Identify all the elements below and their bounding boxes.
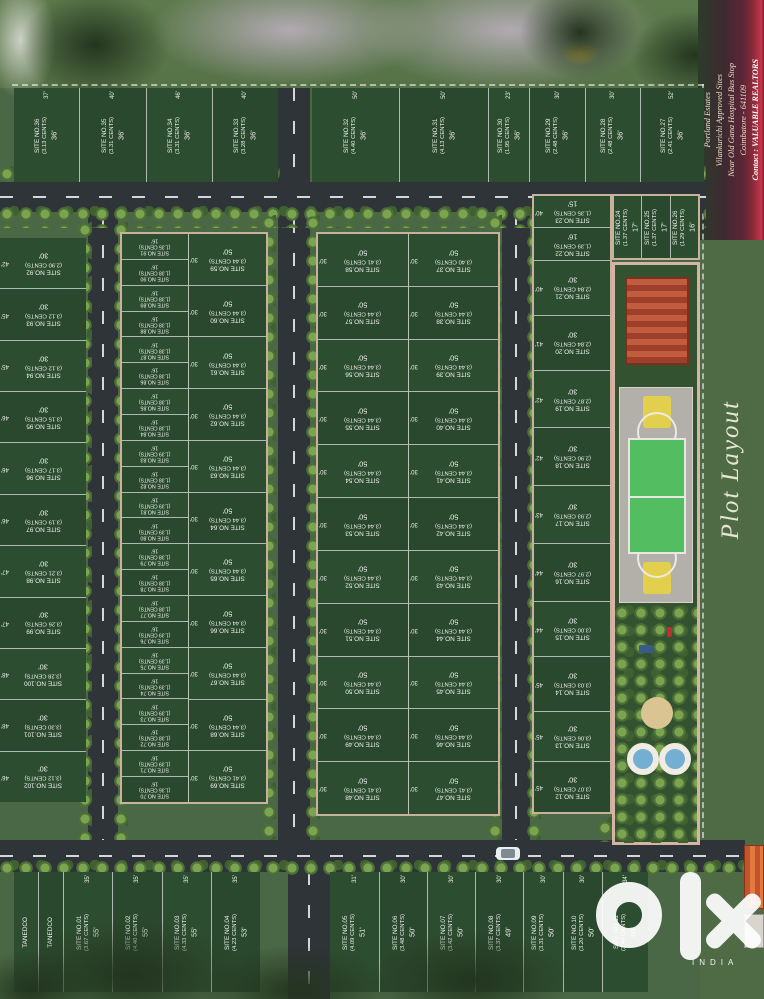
- plot: SITE NO.64(3.44 CENTS)50'30': [189, 492, 266, 544]
- plot-group-top-left: SITE NO.36(3.13 CENTS)36'37'SITE NO.35(3…: [14, 88, 278, 182]
- plot: SITE NO.75(1.39 CENTS)16': [122, 647, 188, 673]
- plot: SITE NO.92(2.90 CENTS)30'42': [0, 238, 86, 288]
- plot: SITE NO.63(3.44 CENTS)50'30': [189, 440, 266, 492]
- plot: SITE NO.38(3.44 CENTS)50'30': [409, 286, 499, 339]
- plot: SITE NO.78(1.38 CENTS)16': [122, 569, 188, 595]
- plot: SITE NO.36(3.13 CENTS)36'37': [14, 88, 79, 182]
- plot-dimension: 30': [190, 567, 198, 573]
- plot: SITE NO.79(1.38 CENTS)16': [122, 543, 188, 569]
- plot-dimension: 30': [190, 774, 198, 780]
- plot: SITE NO.14(3.03 CENTS)30'45': [534, 656, 610, 711]
- plot: SITE NO.47(3.41 CENTS)50'30': [409, 761, 499, 814]
- plot: SITE NO.80(1.39 CENTS)16': [122, 517, 188, 543]
- plot: SITE NO.70(1.36 CENTS)16': [122, 776, 188, 802]
- plot: SITE NO.54(3.44 CENTS)50'30': [318, 444, 408, 497]
- plot-dimension: 30': [319, 679, 327, 685]
- plot-dimension: 44': [535, 569, 543, 575]
- plot: SITE NO.91(1.35 CENTS)16': [122, 234, 188, 259]
- plot: SITE NO.55(3.44 CENTS)50'30': [318, 391, 408, 444]
- plot-dimension: 46': [1, 466, 9, 472]
- plot: SITE NO.56(3.44 CENTS)50'30': [318, 339, 408, 392]
- plot-dimension: 45': [535, 681, 543, 687]
- plot: SITE NO.67(3.44 CENTS)50'30': [189, 647, 266, 699]
- plot-dimension: 30': [190, 619, 198, 625]
- amenity-area: [612, 262, 700, 845]
- plot-dimension: 30': [410, 310, 418, 316]
- plot-dimension: 40': [110, 91, 116, 99]
- plot-dimension: 40': [535, 209, 543, 215]
- plot-dimension: 30': [319, 574, 327, 580]
- plot-dimension: 45': [535, 784, 543, 790]
- plot-group-48-58: SITE NO.58(3.41 CENTS)50'30'SITE NO.57(3…: [318, 234, 408, 814]
- plot-dimension: 30': [410, 521, 418, 527]
- plot: SITE NO.35(3.31 CENTS)36'40': [79, 88, 145, 182]
- plot-dimension: 42': [1, 260, 9, 266]
- plot-dimension: 30': [319, 521, 327, 527]
- plot: SITE NO.84(1.38 CENTS)16': [122, 414, 188, 440]
- plot: SITE NO.13(3.06 CENTS)30'45': [534, 711, 610, 762]
- plot-dimension: 35': [184, 875, 190, 883]
- plot: SITE NO.19(2.87 CENTS)30'42': [534, 370, 610, 428]
- plot: SITE NO.51(3.44 CENTS)50'30': [318, 603, 408, 656]
- plot-dimension: 30': [190, 412, 198, 418]
- plot: SITE NO.31(4.13 CENTS)36'50': [399, 88, 487, 182]
- plot-dimension: 30': [319, 310, 327, 316]
- plot: SITE NO.20(2.84 CENTS)30'41': [534, 315, 610, 370]
- plot-dimension: 30': [319, 363, 327, 369]
- plot: SITE NO.65(3.44 CENTS)50'30': [189, 543, 266, 595]
- plot: SITE NO.62(3.44 CENTS)50'30': [189, 388, 266, 440]
- plot: SITE NO.44(3.44 CENTS)50'30': [409, 603, 499, 656]
- plot: SITE NO.21(2.84 CENTS)30'40': [534, 260, 610, 315]
- plot: SITE NO.76(1.39 CENTS)16': [122, 621, 188, 647]
- plot-dimension: 30': [319, 785, 327, 791]
- plot: SITE NO.46(3.44 CENTS)50'30': [409, 708, 499, 761]
- plot: SITE NO.61(3.44 CENTS)50'30': [189, 336, 266, 388]
- plot-dimension: 30': [541, 875, 547, 883]
- plot-dimension: 40': [535, 285, 543, 291]
- plot: SITE NO.77(1.38 CENTS)16': [122, 595, 188, 621]
- playground-item: [639, 645, 653, 653]
- plot: SITE NO.94(3.12 CENTS)30'45': [0, 340, 86, 391]
- sand-pit: [641, 697, 673, 729]
- plot-dimension: 30': [190, 722, 198, 728]
- plot: SITE NO.22(1.39 CENTS)16': [534, 227, 610, 259]
- plot: SITE NO.37(3.40 CENTS)50'30': [409, 234, 499, 286]
- plot-group-12-23: SITE NO.23(1.35 CENTS)15'40'SITE NO.22(1…: [532, 194, 612, 814]
- boundary-line: [12, 84, 704, 86]
- plot-dimension: 30': [410, 468, 418, 474]
- plot: SITE NO.95(3.15 CENTS)30'46': [0, 391, 86, 442]
- pool: [659, 743, 691, 775]
- olx-india-label: INDIA: [692, 958, 738, 967]
- plot-dimension: 42': [535, 396, 543, 402]
- banner-line: Near Old Gana Hospital Bus Stop: [727, 63, 736, 177]
- plot: SITE NO.43(3.44 CENTS)50'30': [409, 550, 499, 603]
- plot-dimension: 35': [233, 875, 239, 883]
- plot-dimension: 30': [401, 875, 407, 883]
- plot-dimension: 30': [410, 627, 418, 633]
- block-center: SITE NO.58(3.41 CENTS)50'30'SITE NO.57(3…: [316, 232, 500, 816]
- plot-dimension: 50': [353, 91, 359, 99]
- plot: SITE NO.33(3.28 CENTS)36'40': [212, 88, 278, 182]
- plot: SITE NO.101(3.30 CENTS)30'48': [0, 699, 86, 750]
- car-icon: [496, 847, 520, 860]
- plot: SITE NO.66(3.44 CENTS)50'30': [189, 595, 266, 647]
- plot: SITE NO.89(1.38 CENTS)16': [122, 285, 188, 311]
- plot: SITE NO.32(4.40 CENTS)36'50': [312, 88, 399, 182]
- plot: SITE NO.12(3.07 CENTS)30'45': [534, 761, 610, 812]
- plot-dimension: 30': [410, 574, 418, 580]
- plot-group-top-right: SITE NO.32(4.40 CENTS)36'50'SITE NO.31(4…: [312, 88, 704, 182]
- plot-dimension: 41': [535, 340, 543, 346]
- plot-dimension: 30': [190, 360, 198, 366]
- plot-dimension: 30': [190, 463, 198, 469]
- plot: SITE NO.57(3.44 CENTS)50'30': [318, 286, 408, 339]
- plot: SITE NO.68(3.44 CENTS)50'30': [189, 699, 266, 751]
- plot-dimension: 31': [352, 875, 358, 883]
- plot-dimension: 46': [1, 414, 9, 420]
- plot: SITE NO.87(1.38 CENTS)16': [122, 336, 188, 362]
- plot: SITE NO.69(3.41 CENTS)50'30': [189, 750, 266, 802]
- plot: SITE NO.98(3.21 CENTS)30'47': [0, 545, 86, 596]
- plot: SITE NO.81(1.39 CENTS)16': [122, 492, 188, 518]
- olx-logo: INDIA: [580, 866, 764, 974]
- plot: SITE NO.42(3.44 CENTS)50'30': [409, 497, 499, 550]
- plot: SITE NO.24(1.37 CENTS)17': [614, 196, 641, 258]
- plot-dimension: 45': [535, 733, 543, 739]
- plot-dimension: 30': [410, 785, 418, 791]
- plot-dimension: 30': [190, 308, 198, 314]
- plot-dimension: 30': [410, 732, 418, 738]
- clubhouse: [625, 277, 689, 365]
- playground-item: [667, 627, 672, 637]
- plot: SITE NO.49(3.44 CENTS)50'30': [318, 708, 408, 761]
- plot: SITE NO.60(3.44 CENTS)50'30': [189, 285, 266, 337]
- plot: SITE NO.85(1.38 CENTS)16': [122, 388, 188, 414]
- plot: SITE NO.53(3.44 CENTS)50'30': [318, 497, 408, 550]
- block-2: SITE NO.91(1.35 CENTS)16'SITE NO.90(1.38…: [120, 232, 268, 804]
- plot: SITE NO.34(3.31 CENTS)36'46': [146, 88, 212, 182]
- promo-banner: Portland EstatesVilankurichi Approved Si…: [698, 0, 764, 240]
- plot: SITE NO.83(1.39 CENTS)16': [122, 440, 188, 466]
- plot: SITE NO.97(3.19 CENTS)30'46': [0, 494, 86, 545]
- plot-group-37-47: SITE NO.37(3.40 CENTS)50'30'SITE NO.38(3…: [408, 234, 499, 814]
- olx-l-icon: [680, 872, 701, 960]
- plot: SITE NO.48(3.41 CENTS)50'30': [318, 761, 408, 814]
- plot: SITE NO.73(1.39 CENTS)16': [122, 698, 188, 724]
- plot-group-west: SITE NO.92(2.90 CENTS)30'42'SITE NO.93(3…: [0, 238, 86, 802]
- plot-dimension: 30': [319, 257, 327, 263]
- plot: SITE NO.52(3.44 CENTS)50'30': [318, 550, 408, 603]
- plot: SITE NO.40(3.44 CENTS)50'30': [409, 391, 499, 444]
- plot-dimension: 30': [410, 415, 418, 421]
- plot-dimension: 30': [319, 468, 327, 474]
- plot: SITE NO.41(3.44 CENTS)50'30': [409, 444, 499, 497]
- plot-dimension: 44': [535, 626, 543, 632]
- plot-dimension: 47': [1, 568, 9, 574]
- plot-dimension: 48': [1, 671, 9, 677]
- plot: SITE NO.99(3.26 CENTS)30'47': [0, 597, 86, 648]
- plot: SITE NO.25(1.37 CENTS)17': [641, 196, 669, 258]
- road-vertical-2: [502, 212, 530, 842]
- plot-dimension: 30': [410, 257, 418, 263]
- plot: SITE NO.59(3.44 CENTS)50'30': [189, 234, 266, 285]
- plot: SITE NO.93(3.12 CENTS)30'45': [0, 288, 86, 339]
- olx-o-icon: [596, 882, 662, 948]
- plot: SITE NO.29(2.48 CENTS)36'30': [529, 88, 584, 182]
- plot: SITE NO.71(1.39 CENTS)16': [122, 750, 188, 776]
- plot: SITE NO.45(3.44 CENTS)50'30': [409, 656, 499, 709]
- plot-dimension: 37': [44, 91, 50, 99]
- plot-dimension: 23': [506, 91, 512, 99]
- plot-dimension: 30': [497, 875, 503, 883]
- plot-dimension: 40': [242, 91, 248, 99]
- plot-dimension: 30': [190, 670, 198, 676]
- banner-line: Contact : VALUABLE REALTORS: [751, 59, 760, 180]
- pool: [627, 743, 659, 775]
- plot-dimension: 30': [555, 91, 561, 99]
- plot: SITE NO.58(3.41 CENTS)50'30': [318, 234, 408, 286]
- plot: SITE NO.26(1.29 CENTS)16': [670, 196, 698, 258]
- plot: SITE NO.100(3.28 CENTS)30'48': [0, 648, 86, 699]
- plot: SITE NO.30(1.95 CENTS)36'23': [488, 88, 530, 182]
- plot-dimension: 30': [190, 515, 198, 521]
- plot-dimension: 43': [535, 511, 543, 517]
- plot: SITE NO.72(1.38 CENTS)16': [122, 724, 188, 750]
- plot-dimension: 30': [410, 363, 418, 369]
- plot-group-narrow: SITE NO.91(1.35 CENTS)16'SITE NO.90(1.38…: [122, 234, 188, 802]
- plot-dimension: 30': [319, 627, 327, 633]
- plot: SITE NO.82(1.38 CENTS)16': [122, 466, 188, 492]
- plot: SITE NO.18(2.90 CENTS)30'42': [534, 427, 610, 485]
- plot: SITE NO.86(1.38 CENTS)16': [122, 362, 188, 388]
- plot-dimension: 52': [669, 91, 675, 99]
- plot-dimension: 30': [319, 732, 327, 738]
- plot: SITE NO.88(1.38 CENTS)16': [122, 311, 188, 337]
- plot-dimension: 30': [319, 415, 327, 421]
- banner-line: Coimbatore - 641109: [739, 85, 748, 156]
- plot-dimension: 48': [1, 722, 9, 728]
- plot: SITE NO.15(3.00 CENTS)30'44': [534, 601, 610, 656]
- plot-dimension: 46': [176, 91, 182, 99]
- plot-dimension: 46': [1, 774, 9, 780]
- plot-dimension: 50': [441, 91, 447, 99]
- olx-x-icon: [704, 892, 762, 950]
- plot: SITE NO.27(2.41 CENTS)36'52': [640, 88, 704, 182]
- plot-dimension: 30': [449, 875, 455, 883]
- plot-dimension: 30': [610, 91, 616, 99]
- plot-dimension: 30': [410, 679, 418, 685]
- plot: SITE NO.28(2.48 CENTS)36'30': [585, 88, 640, 182]
- plot: SITE NO.39(3.44 CENTS)50'30': [409, 339, 499, 392]
- plot-dimension: 42': [535, 454, 543, 460]
- plot: SITE NO.96(3.17 CENTS)30'46': [0, 442, 86, 493]
- plot-dimension: 47': [1, 620, 9, 626]
- plot: SITE NO.90(1.38 CENTS)16': [122, 259, 188, 285]
- plot-dimension: 45': [1, 363, 9, 369]
- plot: SITE NO.16(2.97 CENTS)30'44': [534, 543, 610, 601]
- plot-group-59-69: SITE NO.59(3.44 CENTS)50'30'SITE NO.60(3…: [188, 234, 266, 802]
- plot: SITE NO.102(3.12 CENTS)30'46': [0, 751, 86, 802]
- plot-dimension: 46': [1, 517, 9, 523]
- banner-line: Vilankurichi Approved Sites: [715, 74, 724, 166]
- plot-group-24-26: SITE NO.24(1.37 CENTS)17'SITE NO.25(1.37…: [612, 194, 700, 260]
- plot: SITE NO.74(1.39 CENTS)16': [122, 673, 188, 699]
- plot: SITE NO.17(2.93 CENTS)30'43': [534, 485, 610, 543]
- plot-dimension: 35': [85, 875, 91, 883]
- tennis-court: [628, 438, 686, 554]
- plot-layout-title: Plot Layout: [700, 348, 762, 592]
- sports-court: [619, 387, 693, 603]
- plot-layout-photo: Portland EstatesVilankurichi Approved Si…: [0, 0, 764, 999]
- plot: SITE NO.50(3.44 CENTS)50'30': [318, 656, 408, 709]
- plot-dimension: 45': [1, 312, 9, 318]
- plot-dimension: 30': [190, 256, 198, 262]
- plot-dimension: 35': [134, 875, 140, 883]
- plot: SITE NO.23(1.35 CENTS)15'40': [534, 196, 610, 227]
